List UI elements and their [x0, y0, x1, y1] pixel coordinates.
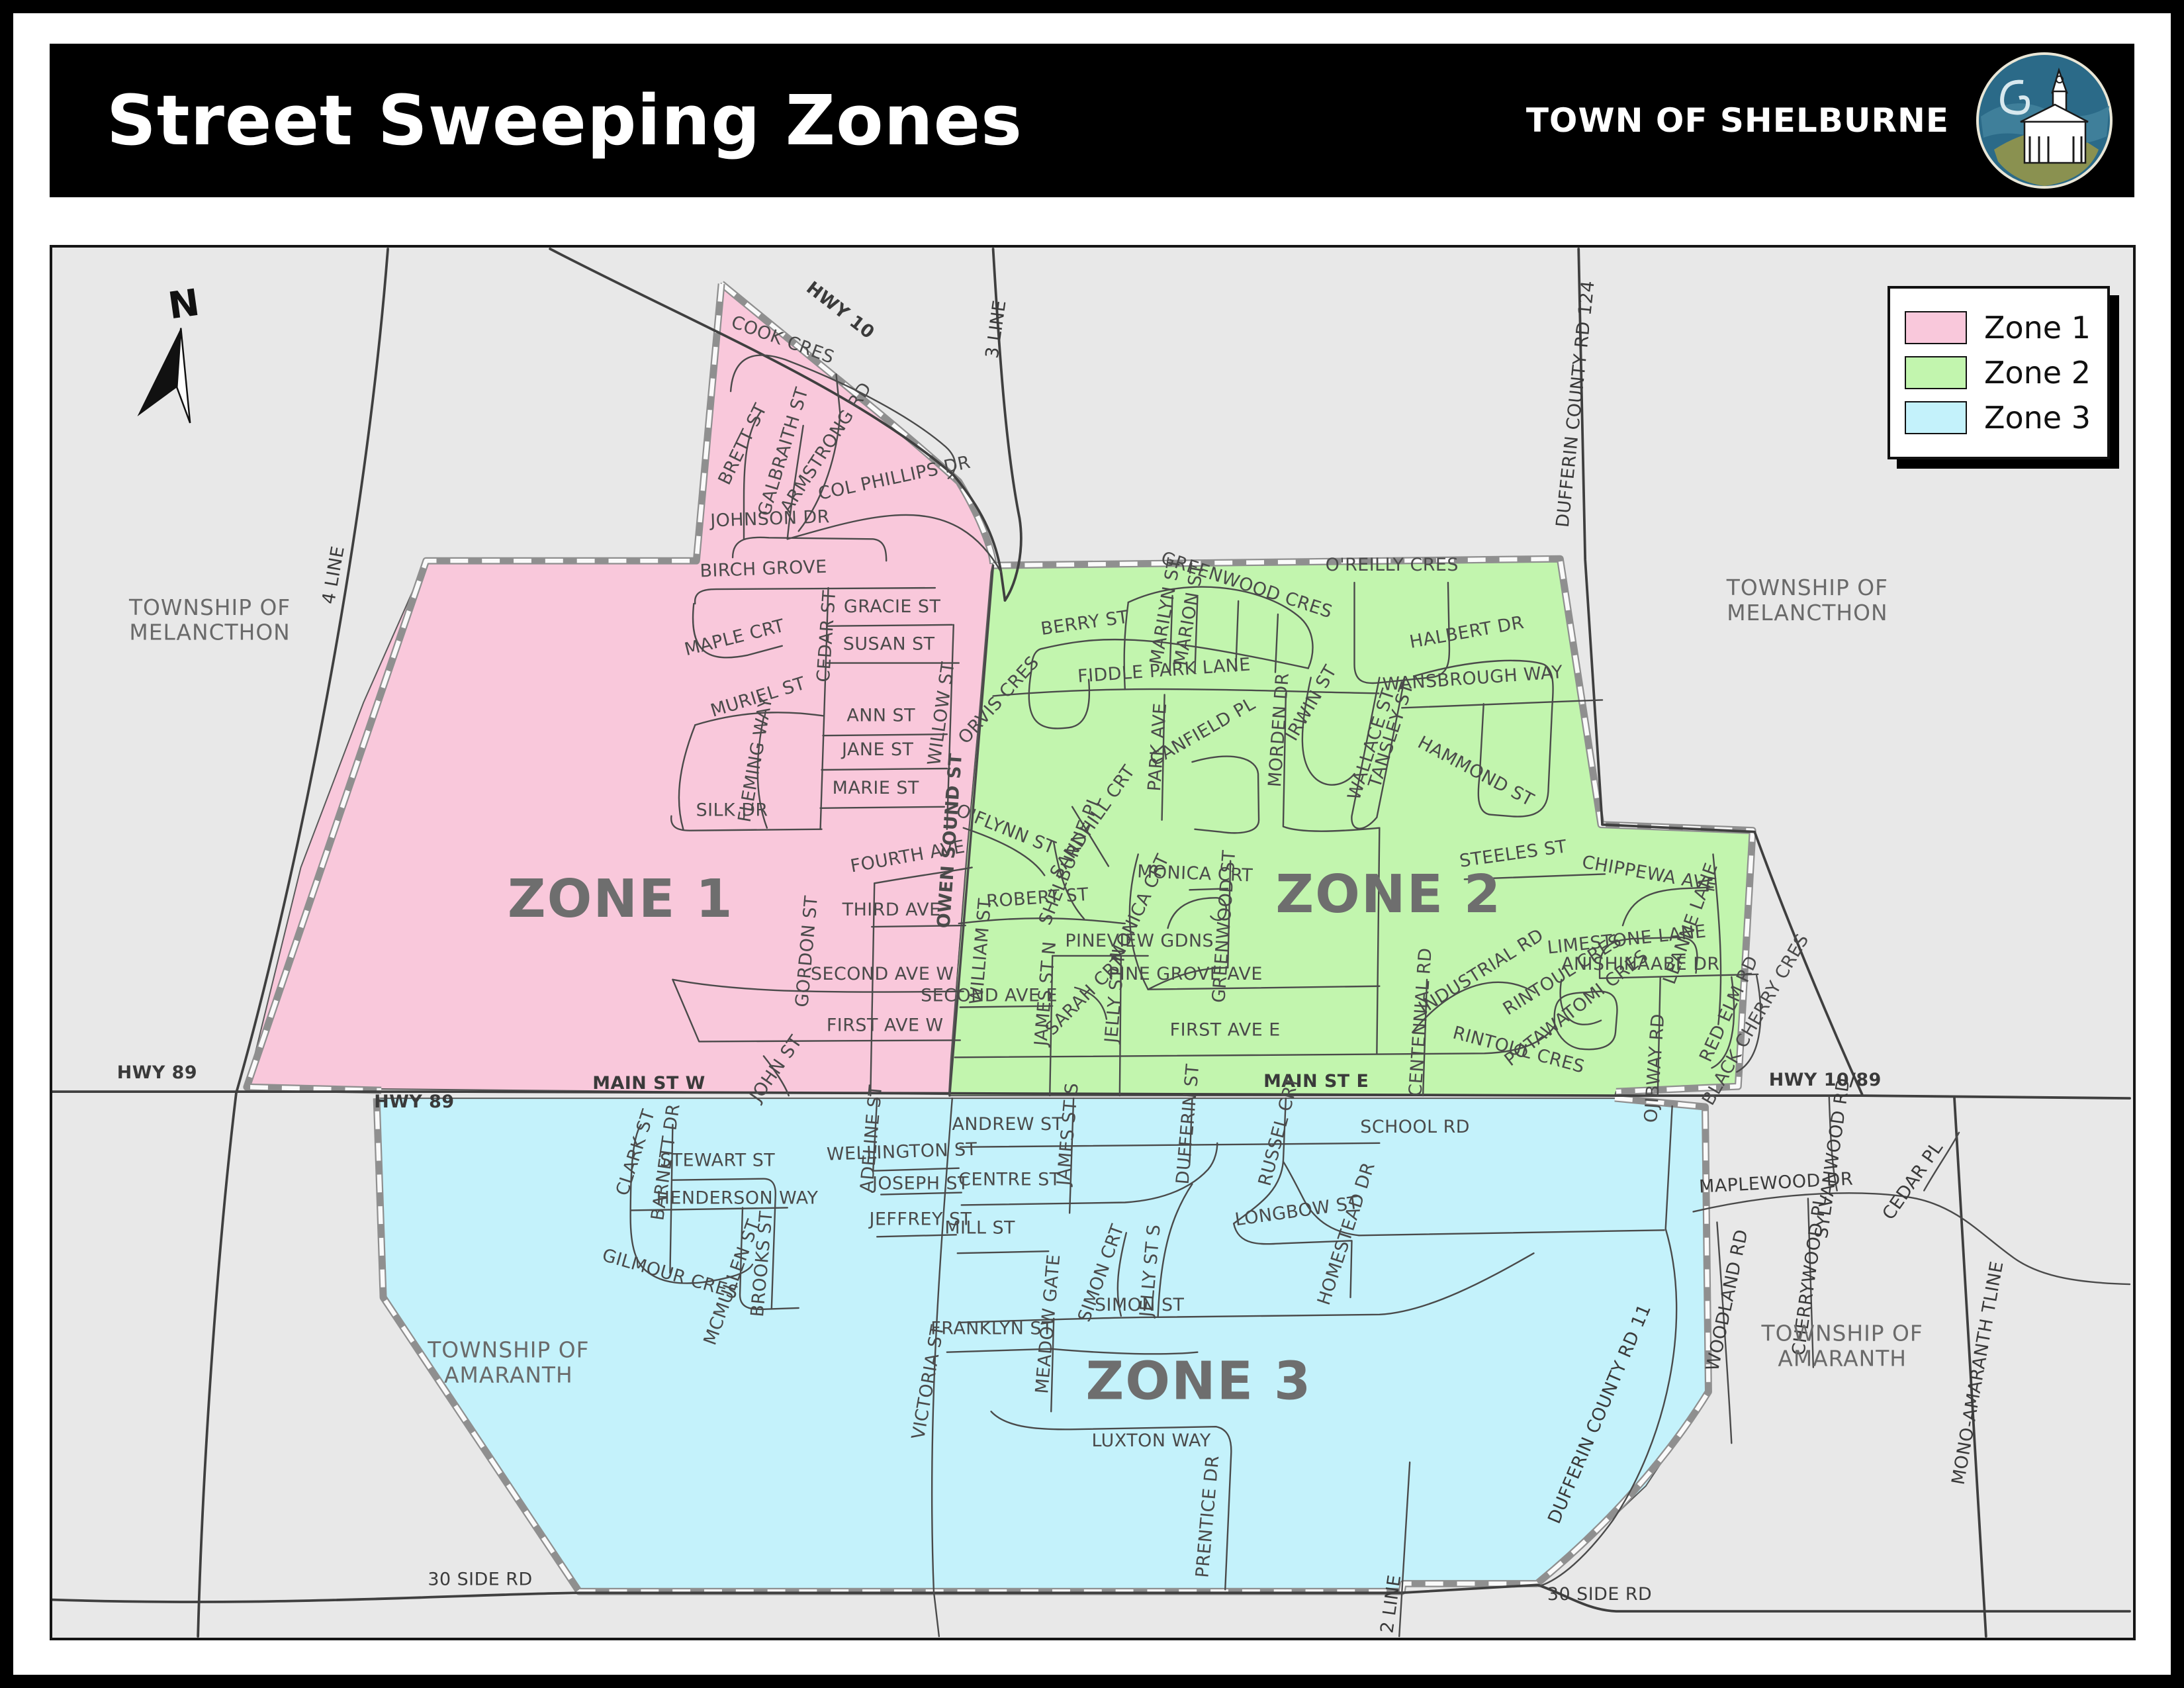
map-label-gracie-st: GRACIE ST	[844, 596, 941, 617]
map-label-30-side-rd: 30 SIDE RD	[1547, 1584, 1652, 1605]
zone3-swatch	[1905, 401, 1967, 434]
zone1-swatch	[1905, 311, 1967, 344]
org-name: TOWN OF SHELBURNE	[1526, 101, 1949, 140]
map-label-second-ave-e: SECOND AVE E	[921, 986, 1058, 1006]
north-arrow: N	[137, 281, 202, 423]
map-label-ann-st: ANN ST	[846, 705, 915, 726]
legend-item-zone1: Zone 1	[1905, 310, 2093, 346]
legend-item-zone2: Zone 2	[1905, 355, 2093, 391]
map-label-hwy-89: HWY 89	[374, 1092, 454, 1112]
map-label-pineview-gdns: PINEVIEW GDNS	[1065, 931, 1214, 951]
zone1-label: Zone 1	[1984, 310, 2091, 346]
north-label: N	[165, 281, 202, 328]
map-label-melancthon: MELANCTHON	[129, 620, 290, 645]
title-bar: Street Sweeping Zones TOWN OF SHELBURNE	[50, 44, 2134, 197]
map-label-simon-st: SIMON ST	[1095, 1295, 1185, 1315]
map-label-school-rd: SCHOOL RD	[1360, 1117, 1470, 1137]
zone-label-zone-3: ZONE 3	[1085, 1350, 1312, 1411]
map-label-dufferin-county-rd-124: DUFFERIN COUNTY RD 124	[1553, 279, 1599, 528]
map-area: HWY 103 LINE3 LINEDUFFERIN COUNTY RD 124…	[50, 245, 2136, 1640]
map-label-andrew-st: ANDREW ST	[952, 1114, 1064, 1135]
map-label-second-ave-w: SECOND AVE W	[811, 964, 954, 984]
map-label-henderson-way: HENDERSON WAY	[657, 1188, 819, 1208]
map-label-30-side-rd: 30 SIDE RD	[428, 1569, 532, 1589]
map-label-first-ave-w: FIRST AVE W	[827, 1015, 944, 1035]
map-label-franklyn-st: FRANKLYN ST	[931, 1319, 1053, 1339]
map-label-hwy-89: HWY 89	[117, 1062, 197, 1083]
zone2-swatch	[1905, 356, 1967, 389]
map-label-township-of: TOWNSHIP OF	[427, 1337, 589, 1363]
map-label-johnson-dr: JOHNSON DR	[709, 506, 831, 531]
map-label-3-line: 3 LINE	[982, 299, 1011, 359]
map-label-hwy-10: HWY 10	[802, 277, 878, 343]
zone3-label: Zone 3	[1984, 400, 2091, 436]
map-label-melancthon: MELANCTHON	[1727, 600, 1888, 626]
map-legend: Zone 1 Zone 2 Zone 3	[1888, 286, 2110, 459]
map-label-hwy-10-89: HWY 10/89	[1769, 1070, 1882, 1090]
map-label-main-st-w: MAIN ST W	[592, 1073, 705, 1094]
map-label-third-ave: THIRD AVE	[842, 900, 941, 920]
map-label-joseph-st: JOSEPH ST	[871, 1174, 969, 1194]
map-label-mono-amaranth-tline: MONO-AMARANTH TLINE	[1948, 1260, 2007, 1487]
map-label-township-of: TOWNSHIP OF	[128, 594, 291, 620]
map-label-marie-st: MARIE ST	[833, 778, 919, 798]
map-label-amaranth: AMARANTH	[444, 1362, 573, 1387]
map-label-cedar-pl: CEDAR PL	[1878, 1138, 1947, 1224]
map-label-centre-st: CENTRE ST	[958, 1170, 1061, 1190]
map-label-stewart-st: STEWART ST	[660, 1150, 775, 1171]
page-title: Street Sweeping Zones	[107, 80, 1023, 161]
zone-label-zone-2: ZONE 2	[1275, 863, 1502, 925]
map-label-township-of: TOWNSHIP OF	[1761, 1321, 1923, 1346]
map-label-susan-st: SUSAN ST	[843, 634, 935, 655]
map-label-sylvanwood-rd: SYLVANWOOD RD	[1811, 1076, 1854, 1240]
map-label-township-of: TOWNSHIP OF	[1726, 575, 1888, 600]
town-logo	[1974, 50, 2115, 191]
map-label-silk-dr: SILK DR	[696, 800, 768, 821]
map-svg: HWY 103 LINE3 LINEDUFFERIN COUNTY RD 124…	[52, 248, 2133, 1638]
map-label-mill-st: MILL ST	[944, 1217, 1015, 1238]
map-label-pine-grove-ave: PINE GROVE AVE	[1109, 964, 1263, 984]
map-label-jane-st: JANE ST	[841, 739, 914, 760]
map-label-amaranth: AMARANTH	[1778, 1346, 1907, 1372]
zone2-label: Zone 2	[1984, 355, 2091, 391]
map-label-luxton-way: LUXTON WAY	[1092, 1430, 1211, 1451]
map-label-first-ave-e: FIRST AVE E	[1170, 1019, 1281, 1040]
legend-item-zone3: Zone 3	[1905, 400, 2093, 436]
zone-label-zone-1: ZONE 1	[508, 868, 734, 929]
map-label-o-reilly-cres: O'REILLY CRES	[1326, 555, 1459, 575]
